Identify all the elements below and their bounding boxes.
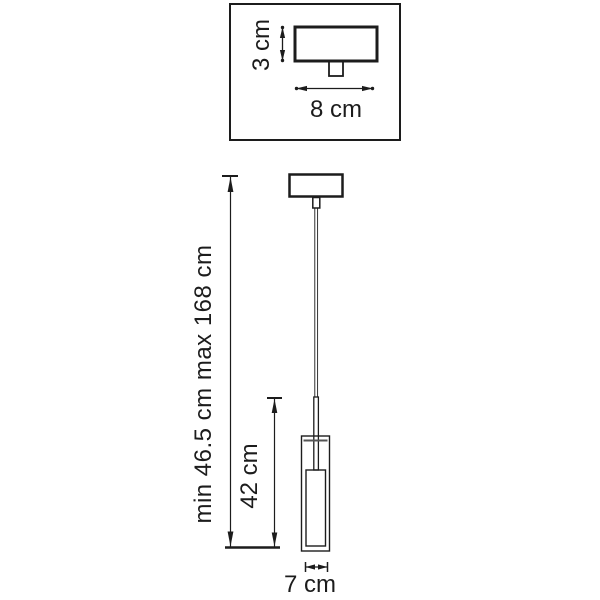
lamp-stem bbox=[314, 397, 319, 470]
main-canopy-stub bbox=[313, 198, 320, 209]
technical-drawing: 3 cm 8 cm min 46.5 cm max 168 cm 42 cm 7… bbox=[0, 0, 600, 600]
shade-width-label: 7 cm bbox=[284, 573, 336, 597]
main-canopy-rect bbox=[290, 175, 343, 197]
shade-inner-tube bbox=[306, 470, 326, 546]
pendant-lamp bbox=[290, 175, 343, 552]
canopy-height-label: 3 cm bbox=[250, 19, 274, 71]
detail-canopy-stub bbox=[329, 61, 343, 76]
shade-height-dimension-line bbox=[267, 398, 282, 547]
drawing-canvas bbox=[0, 0, 600, 600]
detail-canopy-rect bbox=[295, 27, 377, 61]
suspension-cable bbox=[315, 208, 318, 397]
canopy-width-dimension-line bbox=[295, 86, 374, 91]
canopy-width-label: 8 cm bbox=[310, 98, 362, 122]
shade-height-label: 42 cm bbox=[238, 443, 262, 508]
overall-height-label: min 46.5 cm max 168 cm bbox=[192, 244, 216, 523]
canopy-height-dimension-line bbox=[280, 26, 285, 62]
